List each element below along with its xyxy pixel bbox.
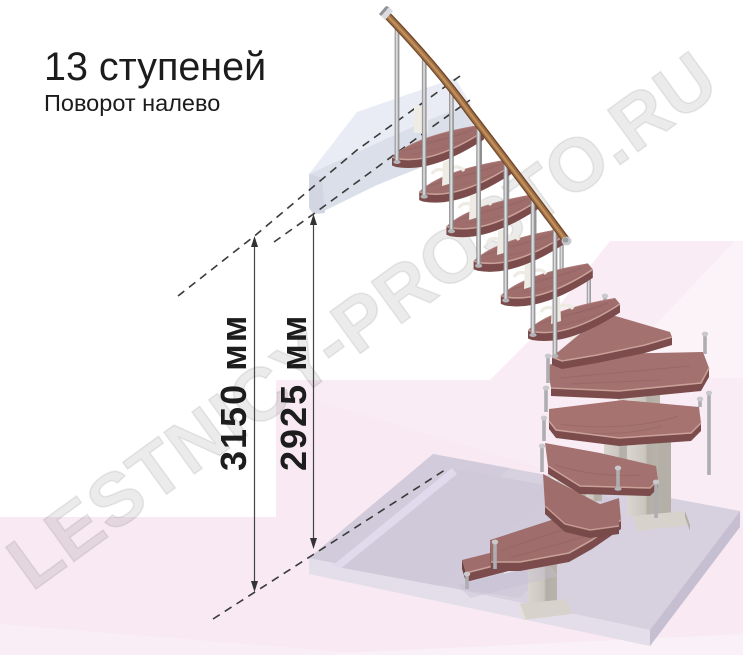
- svg-text:2925 мм: 2925 мм: [273, 314, 314, 471]
- svg-text:Поворот налево: Поворот налево: [44, 90, 220, 116]
- svg-text:3150 мм: 3150 мм: [213, 314, 254, 471]
- svg-text:13 ступеней: 13 ступеней: [44, 45, 266, 89]
